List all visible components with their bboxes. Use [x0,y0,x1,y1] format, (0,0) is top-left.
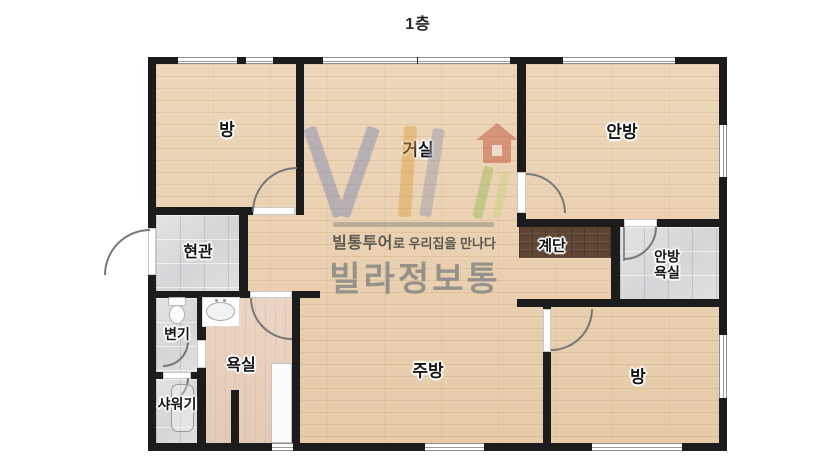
window [592,443,682,451]
sink-icon [202,297,240,327]
door-leaf [624,219,657,227]
room-bang-top-label: 방 [219,120,235,139]
wall-segment [517,219,727,227]
window [425,443,484,451]
wall-segment [231,390,239,451]
door-swing-arc [104,229,150,275]
room-anbang-label: 안방 [606,122,637,141]
door-leaf [250,291,292,298]
floor-title: 1층 [405,10,431,34]
window [323,57,417,64]
room-syawogi-label: 샤워기 [158,397,197,413]
door-leaf [543,309,551,352]
room-byeongi-label: 변기 [164,327,190,343]
room-jubang-label: 주방 [412,361,443,380]
door-leaf [517,172,526,213]
wall-segment [611,227,620,306]
room-geosil-label: 거실 [402,140,433,159]
wall-segment [292,298,300,451]
wall-segment [239,212,248,298]
window [246,57,273,64]
toilet-icon [167,297,187,325]
room-gyedan-label: 계단 [538,239,566,256]
window [272,443,293,451]
room-yoksil-label: 욕실 [226,357,255,375]
wall-segment [517,299,727,307]
window [719,125,727,177]
window [563,57,675,64]
bathtub-icon [271,363,292,443]
window [178,57,237,64]
window [418,57,510,64]
room-anbang-yoksil-label: 안방 욕실 [654,249,680,280]
door-leaf [197,340,206,368]
room-bang-bottom-label: 방 [630,367,646,386]
window [719,335,727,398]
wall-segment [296,57,304,215]
room-hyeongwan-label: 현관 [183,244,212,262]
wall-segment [292,291,320,298]
floorplan-canvas: 1층 방거실안방현관계단안방 욕실변기욕실샤워기주방방 빌통투어로 우리집을 만… [0,0,840,472]
